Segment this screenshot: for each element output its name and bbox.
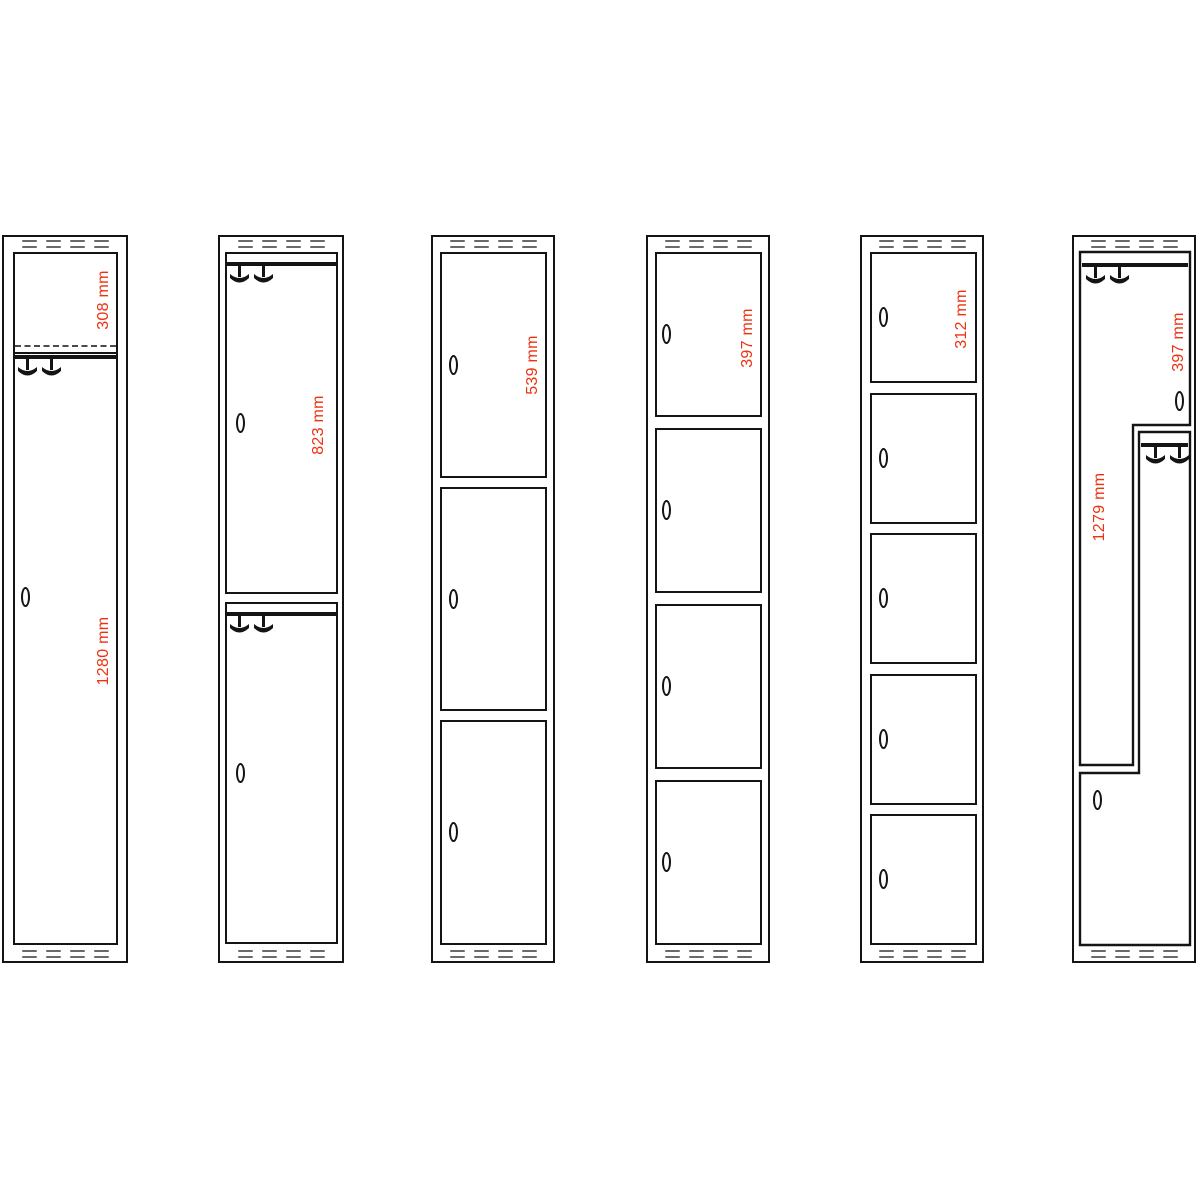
locker-z-doors-ventilation-slots-icon — [1115, 240, 1130, 242]
locker-5-compartments-ventilation-slots-icon — [879, 950, 894, 952]
locker-4-compartments-door-4-lock-icon — [662, 852, 671, 872]
locker-2-compartments-door-1-coat-hooks-icon — [230, 266, 276, 287]
locker-3-compartments-ventilation-slots-icon — [498, 956, 513, 958]
locker-5-compartments-ventilation-slots-icon — [951, 950, 966, 952]
locker-2-compartments-ventilation-slots-icon — [262, 950, 277, 952]
locker-1-compartment-ventilation-slots-icon — [94, 240, 109, 242]
locker-4-compartments-ventilation-slots-icon — [665, 956, 680, 958]
locker-5-compartments-door-4-lock-icon — [879, 729, 888, 749]
locker-1-compartment-ventilation-slots-icon — [22, 950, 37, 952]
locker-3-compartments-ventilation-slots-icon — [450, 240, 465, 242]
locker-z-doors-ventilation-slots-icon — [1139, 950, 1154, 952]
locker-1-compartment-ventilation-slots-icon — [70, 240, 85, 242]
locker-3-compartments-ventilation-slots-icon — [474, 956, 489, 958]
locker-1-compartment-door-1-shelf-edge — [15, 352, 116, 354]
locker-3-compartments-door-3-lock-icon — [449, 822, 458, 842]
locker-4-compartments-ventilation-slots-icon — [665, 246, 680, 248]
locker-1-compartment-ventilation-slots-icon — [46, 956, 61, 958]
locker-z-doors-dimension-label: 397 mm — [1170, 312, 1188, 372]
locker-2-compartments-ventilation-slots-icon — [238, 246, 253, 248]
locker-1-compartment-ventilation-slots-icon — [46, 950, 61, 952]
locker-z-doors-ventilation-slots-icon — [1091, 956, 1106, 958]
locker-3-compartments-ventilation-slots-icon — [522, 246, 537, 248]
locker-z-doors-ventilation-slots-icon — [1115, 246, 1130, 248]
locker-z-doors-ventilation-slots-icon — [1163, 240, 1178, 242]
locker-2-compartments-ventilation-slots-icon — [286, 246, 301, 248]
locker-4-compartments-ventilation-slots-icon — [689, 246, 704, 248]
locker-5-compartments-dimension-label: 312 mm — [953, 289, 971, 349]
locker-5-compartments-ventilation-slots-icon — [879, 956, 894, 958]
locker-2-compartments-ventilation-slots-icon — [262, 956, 277, 958]
locker-2-compartments-dimension-label: 823 mm — [310, 395, 328, 455]
locker-2-compartments-ventilation-slots-icon — [286, 240, 301, 242]
locker-5-compartments-ventilation-slots-icon — [951, 240, 966, 242]
locker-z-doors-door-1-coat-hooks-icon — [1086, 267, 1132, 288]
locker-3-compartments-ventilation-slots-icon — [450, 246, 465, 248]
locker-5-compartments-ventilation-slots-icon — [903, 956, 918, 958]
locker-3-compartments-ventilation-slots-icon — [498, 246, 513, 248]
locker-2-compartments-ventilation-slots-icon — [262, 240, 277, 242]
locker-3-compartments-ventilation-slots-icon — [498, 240, 513, 242]
locker-1-compartment-dimension-label: 308 mm — [95, 270, 113, 330]
locker-5-compartments-ventilation-slots-icon — [927, 240, 942, 242]
locker-3-compartments-ventilation-slots-icon — [474, 246, 489, 248]
locker-z-doors-door-2-coat-hooks-icon — [1146, 447, 1192, 468]
locker-3-compartments-ventilation-slots-icon — [450, 956, 465, 958]
locker-1-compartment-ventilation-slots-icon — [22, 240, 37, 242]
locker-2-compartments-ventilation-slots-icon — [238, 950, 253, 952]
locker-3-compartments-door-1-lock-icon — [449, 355, 458, 375]
locker-4-compartments-ventilation-slots-icon — [737, 956, 752, 958]
locker-2-compartments-door-1-lock-icon — [236, 413, 245, 433]
locker-4-compartments-ventilation-slots-icon — [737, 240, 752, 242]
locker-4-compartments-ventilation-slots-icon — [713, 956, 728, 958]
locker-z-doors-door-2-lock-icon — [1093, 790, 1102, 810]
locker-3-compartments-ventilation-slots-icon — [522, 950, 537, 952]
locker-5-compartments-door-2-lock-icon — [879, 448, 888, 468]
locker-2-compartments-ventilation-slots-icon — [310, 950, 325, 952]
locker-4-compartments-door-3 — [655, 604, 762, 769]
locker-z-doors-ventilation-slots-icon — [1163, 246, 1178, 248]
locker-5-compartments-ventilation-slots-icon — [879, 240, 894, 242]
locker-2-compartments-ventilation-slots-icon — [238, 956, 253, 958]
locker-1-compartment-ventilation-slots-icon — [22, 956, 37, 958]
locker-z-doors-ventilation-slots-icon — [1091, 240, 1106, 242]
locker-4-compartments-ventilation-slots-icon — [737, 950, 752, 952]
locker-3-compartments-ventilation-slots-icon — [474, 950, 489, 952]
locker-1-compartment-ventilation-slots-icon — [94, 246, 109, 248]
locker-1-compartment-ventilation-slots-icon — [46, 246, 61, 248]
locker-1-compartment-ventilation-slots-icon — [70, 956, 85, 958]
locker-3-compartments-ventilation-slots-icon — [498, 950, 513, 952]
locker-z-doors-ventilation-slots-icon — [1163, 956, 1178, 958]
locker-size-diagram: 308 mm1280 mm823 mm539 mm397 mm312 mm397… — [0, 0, 1200, 1200]
locker-z-doors-dimension-label: 1279 mm — [1091, 473, 1109, 542]
locker-2-compartments-ventilation-slots-icon — [262, 246, 277, 248]
locker-4-compartments-ventilation-slots-icon — [713, 950, 728, 952]
locker-4-compartments-door-2 — [655, 428, 762, 593]
locker-4-compartments-ventilation-slots-icon — [713, 246, 728, 248]
locker-4-compartments-ventilation-slots-icon — [713, 240, 728, 242]
locker-z-doors-ventilation-slots-icon — [1139, 240, 1154, 242]
locker-5-compartments-door-1-lock-icon — [879, 307, 888, 327]
locker-1-compartment-door-1-shelf-hidden-edge — [15, 345, 116, 347]
locker-5-compartments-door-3-lock-icon — [879, 588, 888, 608]
locker-z-doors-ventilation-slots-icon — [1139, 956, 1154, 958]
locker-4-compartments-door-1-lock-icon — [662, 324, 671, 344]
locker-4-compartments-dimension-label: 397 mm — [739, 308, 757, 368]
locker-4-compartments-ventilation-slots-icon — [689, 956, 704, 958]
locker-1-compartment-ventilation-slots-icon — [70, 246, 85, 248]
locker-1-compartment-ventilation-slots-icon — [46, 240, 61, 242]
locker-4-compartments-ventilation-slots-icon — [665, 240, 680, 242]
locker-5-compartments-ventilation-slots-icon — [951, 246, 966, 248]
locker-1-compartment-ventilation-slots-icon — [22, 246, 37, 248]
locker-1-compartment-dimension-label: 1280 mm — [95, 617, 113, 686]
locker-z-doors-ventilation-slots-icon — [1091, 246, 1106, 248]
locker-3-compartments-dimension-label: 539 mm — [524, 335, 542, 395]
locker-2-compartments-ventilation-slots-icon — [310, 240, 325, 242]
locker-3-compartments-ventilation-slots-icon — [474, 240, 489, 242]
locker-1-compartment-ventilation-slots-icon — [70, 950, 85, 952]
locker-z-doors-door-1-lock-icon — [1175, 391, 1184, 411]
locker-4-compartments-ventilation-slots-icon — [689, 240, 704, 242]
locker-4-compartments-door-4 — [655, 780, 762, 945]
locker-5-compartments-ventilation-slots-icon — [903, 950, 918, 952]
locker-1-compartment-ventilation-slots-icon — [94, 950, 109, 952]
locker-1-compartment-door-1-coat-hooks-icon — [18, 359, 64, 380]
locker-5-compartments-ventilation-slots-icon — [879, 246, 894, 248]
locker-z-doors-ventilation-slots-icon — [1139, 246, 1154, 248]
locker-1-compartment-ventilation-slots-icon — [94, 956, 109, 958]
locker-5-compartments-ventilation-slots-icon — [927, 956, 942, 958]
locker-3-compartments-ventilation-slots-icon — [522, 956, 537, 958]
locker-4-compartments-door-2-lock-icon — [662, 500, 671, 520]
locker-3-compartments-ventilation-slots-icon — [450, 950, 465, 952]
locker-5-compartments-ventilation-slots-icon — [927, 246, 942, 248]
locker-5-compartments-door-5-lock-icon — [879, 869, 888, 889]
locker-z-doors-ventilation-slots-icon — [1091, 950, 1106, 952]
locker-4-compartments-ventilation-slots-icon — [689, 950, 704, 952]
locker-4-compartments-ventilation-slots-icon — [737, 246, 752, 248]
locker-4-compartments-ventilation-slots-icon — [665, 950, 680, 952]
locker-5-compartments-ventilation-slots-icon — [951, 956, 966, 958]
locker-2-compartments-ventilation-slots-icon — [286, 956, 301, 958]
locker-5-compartments-ventilation-slots-icon — [903, 240, 918, 242]
locker-3-compartments-door-2-lock-icon — [449, 589, 458, 609]
locker-2-compartments-ventilation-slots-icon — [286, 950, 301, 952]
locker-z-doors-ventilation-slots-icon — [1115, 950, 1130, 952]
locker-1-compartment-door-1-lock-icon — [21, 587, 30, 607]
locker-2-compartments-ventilation-slots-icon — [310, 956, 325, 958]
locker-2-compartments-ventilation-slots-icon — [310, 246, 325, 248]
locker-2-compartments-door-2-lock-icon — [236, 763, 245, 783]
locker-z-doors-ventilation-slots-icon — [1115, 956, 1130, 958]
locker-5-compartments-ventilation-slots-icon — [927, 950, 942, 952]
locker-2-compartments-ventilation-slots-icon — [238, 240, 253, 242]
locker-2-compartments-door-2-coat-hooks-icon — [230, 616, 276, 637]
locker-4-compartments-door-3-lock-icon — [662, 676, 671, 696]
locker-3-compartments-ventilation-slots-icon — [522, 240, 537, 242]
locker-z-doors-ventilation-slots-icon — [1163, 950, 1178, 952]
locker-5-compartments-ventilation-slots-icon — [903, 246, 918, 248]
